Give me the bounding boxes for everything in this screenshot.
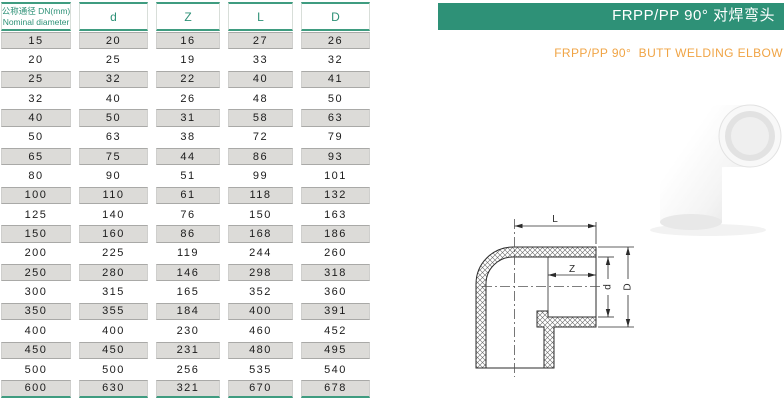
col-header-nominal-diameter-en: Nominal diameter — [3, 17, 70, 28]
dimension-d: d — [598, 257, 614, 317]
table-cell: 184 — [156, 303, 220, 320]
col-header-nominal-diameter-zh: 公称通径 DN(mm) — [2, 6, 70, 17]
table-cell: 260 — [301, 244, 370, 263]
label-Z: Z — [569, 264, 575, 275]
dimension-Z: Z — [548, 264, 596, 277]
table-cell: 450 — [1, 342, 71, 359]
table-cell: 165 — [156, 282, 220, 301]
table-cell: 31 — [156, 109, 220, 126]
table-cell: 132 — [301, 187, 370, 204]
table-cell: 460 — [228, 321, 293, 340]
dimension-L: L — [515, 214, 597, 244]
col-header-nominal-diameter: 公称通径 DN(mm) Nominal diameter — [1, 2, 71, 31]
table-cell: 230 — [156, 321, 220, 340]
table-cell: 20 — [79, 32, 148, 49]
table-cell: 280 — [79, 264, 148, 281]
table-cell: 19 — [156, 50, 220, 69]
table-cell: 231 — [156, 342, 220, 359]
table-cell: 40 — [228, 71, 293, 88]
table-cell: 15 — [1, 32, 71, 49]
table-cell: 168 — [228, 225, 293, 242]
col-header-D: D — [301, 2, 370, 31]
table-cell: 40 — [1, 109, 71, 126]
table-cell: 101 — [301, 166, 370, 185]
table-cell: 160 — [79, 225, 148, 242]
table-cell: 400 — [228, 303, 293, 320]
table-cell: 63 — [301, 109, 370, 126]
table-cell: 119 — [156, 244, 220, 263]
table-cell: 25 — [79, 50, 148, 69]
table-cell: 65 — [1, 148, 71, 165]
table-cell: 150 — [1, 225, 71, 242]
table-cell: 72 — [228, 128, 293, 147]
page-title: FRPP/PP 90° 对焊弯头 — [438, 3, 784, 30]
table-cell: 16 — [156, 32, 220, 49]
table-cell: 33 — [228, 50, 293, 69]
table-cell: 86 — [228, 148, 293, 165]
spec-table: 公称通径 DN(mm) Nominal diameter d Z L D 152… — [1, 2, 370, 399]
col-header-z: Z — [156, 2, 220, 31]
table-cell: 678 — [301, 380, 370, 397]
table-cell: 86 — [156, 225, 220, 242]
table-cell: 244 — [228, 244, 293, 263]
table-cell: 321 — [156, 380, 220, 397]
table-cell: 100 — [1, 187, 71, 204]
table-cell: 495 — [301, 342, 370, 359]
table-cell: 450 — [79, 342, 148, 359]
table-cell: 298 — [228, 264, 293, 281]
label-D: D — [623, 283, 634, 290]
table-cell: 315 — [79, 282, 148, 301]
table-cell: 110 — [79, 187, 148, 204]
page-subtitle: FRPP/PP 90° BUTT WELDING ELBOW — [443, 46, 783, 60]
table-cell: 200 — [1, 244, 71, 263]
table-cell: 186 — [301, 225, 370, 242]
table-cell: 670 — [228, 380, 293, 397]
table-cell: 355 — [79, 303, 148, 320]
col-header-l: L — [228, 2, 293, 31]
elbow-photo-right-port-inner — [731, 117, 769, 155]
table-cell: 25 — [1, 71, 71, 88]
table-cell: 41 — [301, 71, 370, 88]
table-cell: 48 — [228, 89, 293, 108]
table-cell: 500 — [1, 360, 71, 379]
table-cell: 20 — [1, 50, 71, 69]
table-cell: 99 — [228, 166, 293, 185]
table-cell: 27 — [228, 32, 293, 49]
table-cell: 452 — [301, 321, 370, 340]
col-header-d: d — [79, 2, 148, 31]
table-cell: 540 — [301, 360, 370, 379]
table-cell: 44 — [156, 148, 220, 165]
table-cell: 500 — [79, 360, 148, 379]
table-cell: 75 — [79, 148, 148, 165]
table-cell: 256 — [156, 360, 220, 379]
table-cell: 63 — [79, 128, 148, 147]
table-cell: 150 — [228, 205, 293, 224]
table-cell: 318 — [301, 264, 370, 281]
table-cell: 93 — [301, 148, 370, 165]
table-cell: 600 — [1, 380, 71, 397]
label-L: L — [552, 214, 558, 225]
table-cell: 58 — [228, 109, 293, 126]
table-cell: 50 — [1, 128, 71, 147]
table-cell: 225 — [79, 244, 148, 263]
table-cell: 125 — [1, 205, 71, 224]
table-cell: 32 — [301, 50, 370, 69]
table-cell: 163 — [301, 205, 370, 224]
table-cell: 61 — [156, 187, 220, 204]
elbow-section-body — [476, 247, 596, 368]
table-cell: 360 — [301, 282, 370, 301]
table-cell: 50 — [79, 109, 148, 126]
table-cell: 140 — [79, 205, 148, 224]
table-cell: 400 — [79, 321, 148, 340]
table-cell: 40 — [79, 89, 148, 108]
table-cell: 250 — [1, 264, 71, 281]
dimension-diagram: L Z d D — [430, 195, 680, 409]
table-cell: 400 — [1, 321, 71, 340]
label-d: d — [603, 284, 614, 290]
table-cell: 535 — [228, 360, 293, 379]
table-cell: 50 — [301, 89, 370, 108]
table-cell: 26 — [156, 89, 220, 108]
table-cell: 51 — [156, 166, 220, 185]
table-cell: 79 — [301, 128, 370, 147]
table-cell: 146 — [156, 264, 220, 281]
table-cell: 630 — [79, 380, 148, 397]
table-cell: 80 — [1, 166, 71, 185]
table-cell: 32 — [1, 89, 71, 108]
table-cell: 90 — [79, 166, 148, 185]
table-cell: 76 — [156, 205, 220, 224]
table-cell: 391 — [301, 303, 370, 320]
table-cell: 350 — [1, 303, 71, 320]
table-cell: 352 — [228, 282, 293, 301]
table-cell: 480 — [228, 342, 293, 359]
table-cell: 38 — [156, 128, 220, 147]
table-cell: 22 — [156, 71, 220, 88]
page: { "header": { "title_zh": "FRPP/PP 90° 对… — [0, 0, 784, 409]
table-cell: 118 — [228, 187, 293, 204]
table-cell: 32 — [79, 71, 148, 88]
table-cell: 26 — [301, 32, 370, 49]
table-cell: 300 — [1, 282, 71, 301]
